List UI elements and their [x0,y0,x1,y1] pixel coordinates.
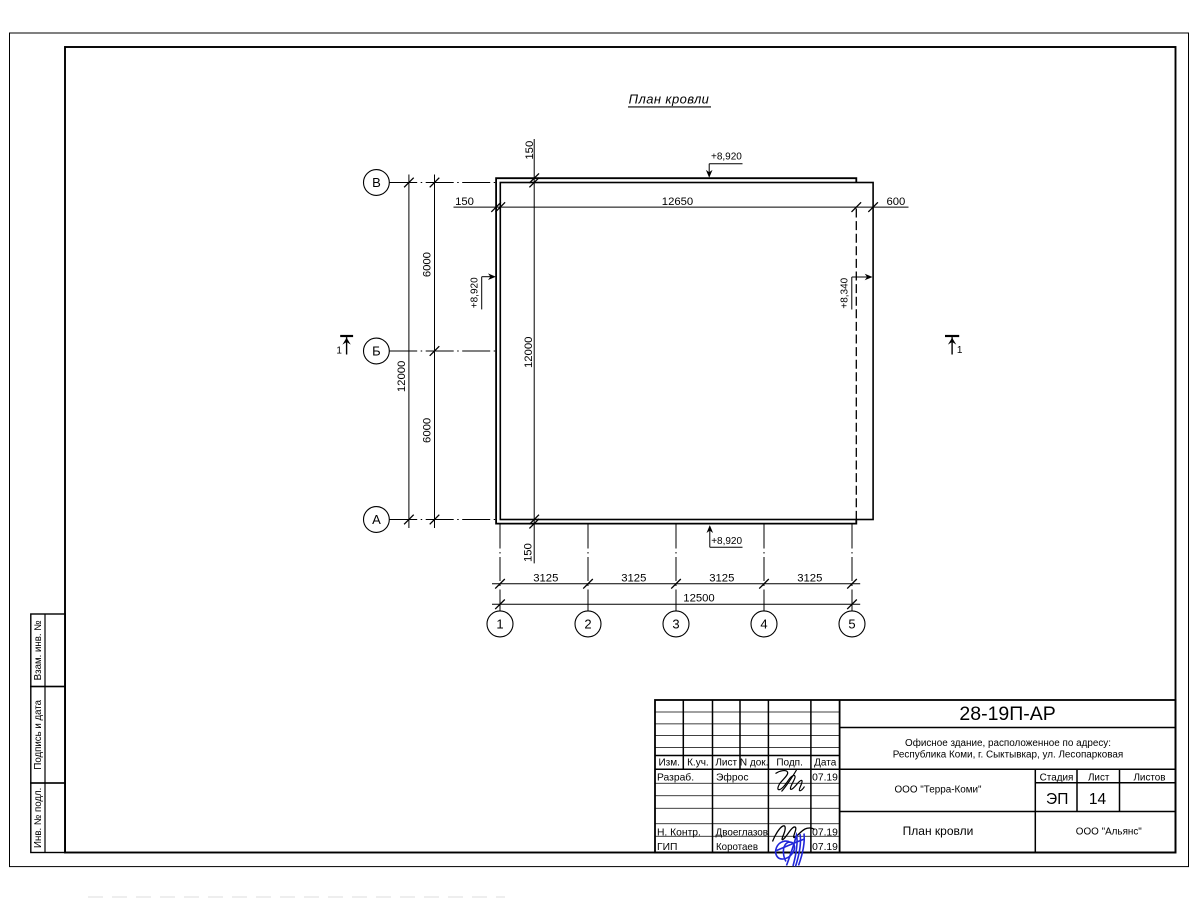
svg-text:6000: 6000 [422,418,434,443]
svg-text:6000: 6000 [422,252,434,277]
svg-text:12500: 12500 [683,593,714,605]
svg-text:Дата: Дата [814,758,837,769]
svg-text:1: 1 [957,345,963,356]
svg-text:ЭП: ЭП [1046,791,1068,808]
svg-text:В: В [372,175,381,190]
svg-text:Коротаев: Коротаев [716,842,758,853]
svg-text:+8,920: +8,920 [711,536,742,547]
svg-text:07.19: 07.19 [812,842,838,853]
svg-text:ООО "Альянс": ООО "Альянс" [1076,827,1143,838]
svg-text:Лист: Лист [1088,773,1110,784]
svg-text:N док.: N док. [740,758,769,769]
svg-text:14: 14 [1089,791,1107,808]
svg-text:1: 1 [336,345,342,356]
svg-text:План кровли: План кровли [629,92,710,107]
svg-text:4: 4 [760,616,767,631]
svg-text:600: 600 [886,196,905,208]
svg-text:Инв. № подл.: Инв. № подл. [33,788,44,848]
svg-text:Республика Коми, г. Сыктывкар,: Республика Коми, г. Сыктывкар, ул. Лесоп… [893,749,1123,760]
svg-text:1: 1 [496,616,503,631]
svg-text:План кровли: План кровли [903,824,974,838]
svg-text:Подпись и дата: Подпись и дата [33,699,44,769]
svg-text:3125: 3125 [533,572,558,584]
svg-text:150: 150 [524,141,536,160]
svg-text:3125: 3125 [797,572,822,584]
svg-text:Б: Б [372,344,381,359]
svg-text:Лист: Лист [715,758,737,769]
svg-text:А: А [372,512,381,527]
svg-text:+8,920: +8,920 [470,277,481,308]
svg-text:Изм.: Изм. [658,758,679,769]
svg-text:2: 2 [584,616,591,631]
svg-text:150: 150 [523,543,535,562]
svg-text:+8,920: +8,920 [711,151,742,162]
svg-text:12000: 12000 [396,361,408,392]
svg-text:Эфрос: Эфрос [716,771,748,783]
svg-text:12000: 12000 [523,337,535,368]
svg-text:150: 150 [455,196,474,208]
svg-text:Офисное здание, расположенное: Офисное здание, расположенное по адресу: [905,738,1111,749]
svg-text:ООО "Терра-Коми": ООО "Терра-Коми" [894,785,982,796]
svg-text:Листов: Листов [1133,773,1165,784]
svg-text:К.уч.: К.уч. [687,758,709,769]
svg-text:Подп.: Подп. [776,758,803,769]
svg-text:3125: 3125 [709,572,734,584]
svg-text:Двоеглазов: Двоеглазов [716,828,769,839]
svg-text:3: 3 [672,616,679,631]
svg-text:ГИП: ГИП [657,842,677,853]
svg-text:Стадия: Стадия [1040,773,1074,784]
svg-text:Разраб.: Разраб. [657,771,694,783]
svg-text:07.19: 07.19 [812,828,838,839]
svg-text:Н. Контр.: Н. Контр. [657,828,701,839]
svg-text:12650: 12650 [662,196,693,208]
svg-text:3125: 3125 [621,572,646,584]
svg-text:28-19П-АР: 28-19П-АР [959,703,1055,725]
svg-text:07.19: 07.19 [812,772,838,783]
svg-text:5: 5 [848,616,855,631]
svg-text:+8,340: +8,340 [839,277,850,308]
svg-text:Взам. инв. №: Взам. инв. № [33,620,44,680]
